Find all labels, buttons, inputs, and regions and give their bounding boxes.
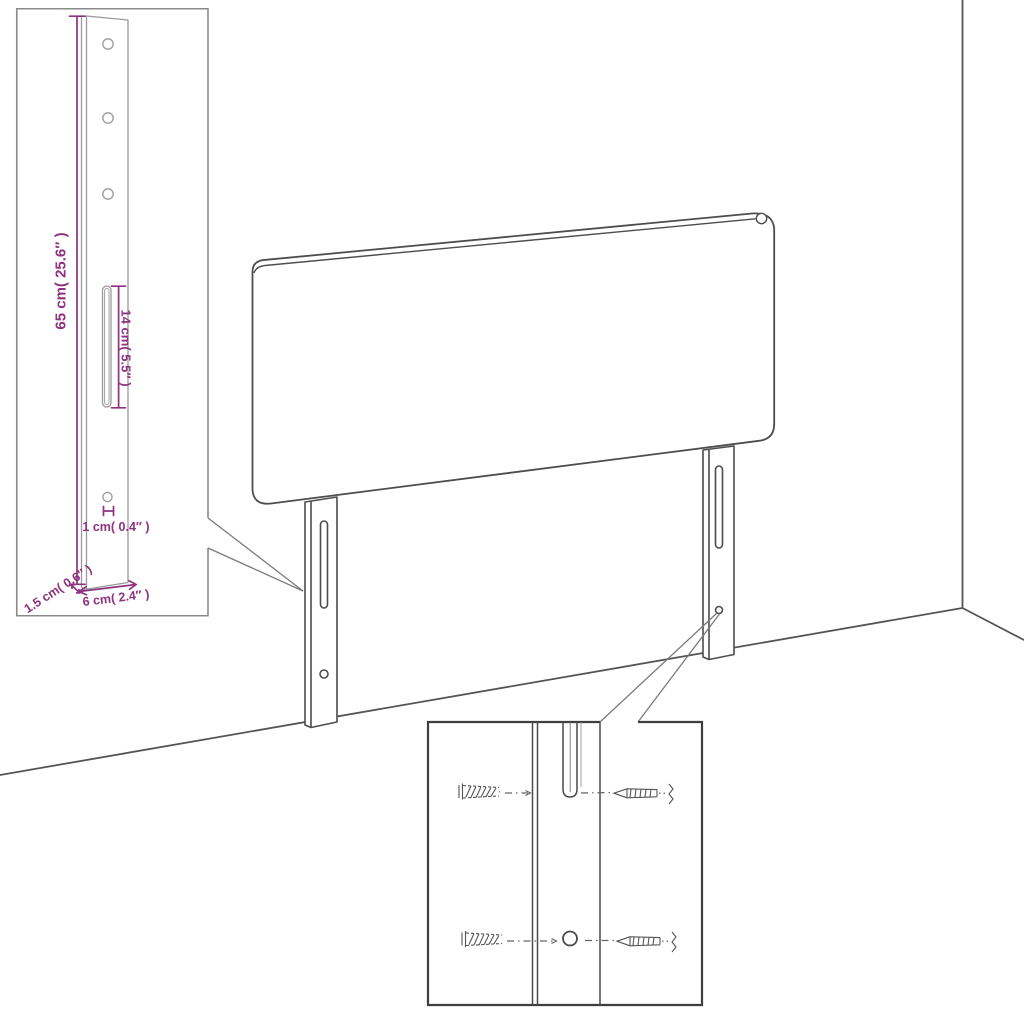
leg-hole [103,113,113,123]
panel-top-rim-curl [756,213,766,223]
dimension-label-slot-length: 14 cm( 5.5″ ) [119,309,134,386]
mounting-detail-inset [428,722,702,1005]
dimension-label-height: 65 cm( 25.6″ ) [53,232,70,329]
leg-hole [103,39,113,49]
dimension-label-hole-diameter: 1 cm( 0.4″ ) [82,520,149,534]
callout-lines-left [208,518,303,591]
leg-hole [320,670,328,678]
headboard-panel [253,213,775,503]
leg-hole [103,492,112,501]
diagram-lineart [0,0,1024,1024]
mounting-leg-right [703,446,734,660]
leg-slot-inner [105,289,109,405]
product-diagram: 65 cm( 25.6″ ) 14 cm( 5.5″ ) 1 cm( 0.4″ … [0,0,1024,1024]
leg-slot [716,466,723,548]
leg-hole [716,607,723,614]
leg-detail-drawing [82,16,129,590]
leg-hole [103,189,113,199]
leg-slot [321,521,328,608]
mounting-leg-left [305,497,337,728]
